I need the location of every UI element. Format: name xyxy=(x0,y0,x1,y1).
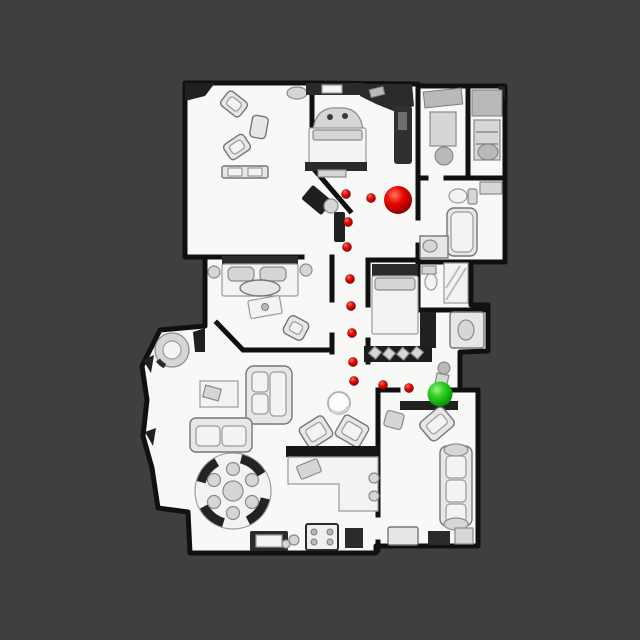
path-waypoint-dot xyxy=(346,301,355,310)
nightstand-icon xyxy=(300,264,312,276)
path-waypoint-dot xyxy=(345,274,354,283)
floorplan-canvas xyxy=(0,0,640,640)
path-waypoint-dot xyxy=(342,242,351,251)
path-waypoint-dot xyxy=(341,189,350,198)
toilet-icon xyxy=(449,189,467,203)
stove-icon xyxy=(306,524,338,550)
ottoman-icon xyxy=(249,115,269,139)
plant-icon xyxy=(287,87,307,99)
path-waypoint-dot xyxy=(343,217,352,226)
path-waypoint-dot xyxy=(404,383,413,392)
path-waypoint-dot xyxy=(378,380,387,389)
toilet-icon xyxy=(425,274,437,290)
path-waypoint-dot xyxy=(347,328,356,337)
path-waypoint-dot xyxy=(366,193,375,202)
cabinet-icon xyxy=(388,527,418,545)
red-sphere-marker xyxy=(384,186,412,214)
path-waypoint-dot xyxy=(348,357,357,366)
counter-edge xyxy=(286,446,380,457)
path-waypoint-dot xyxy=(349,376,358,385)
scan-viewport[interactable] xyxy=(0,0,640,640)
nightstand-icon xyxy=(208,266,220,278)
green-sphere-marker xyxy=(428,382,453,407)
desk-chair-icon xyxy=(324,199,338,213)
